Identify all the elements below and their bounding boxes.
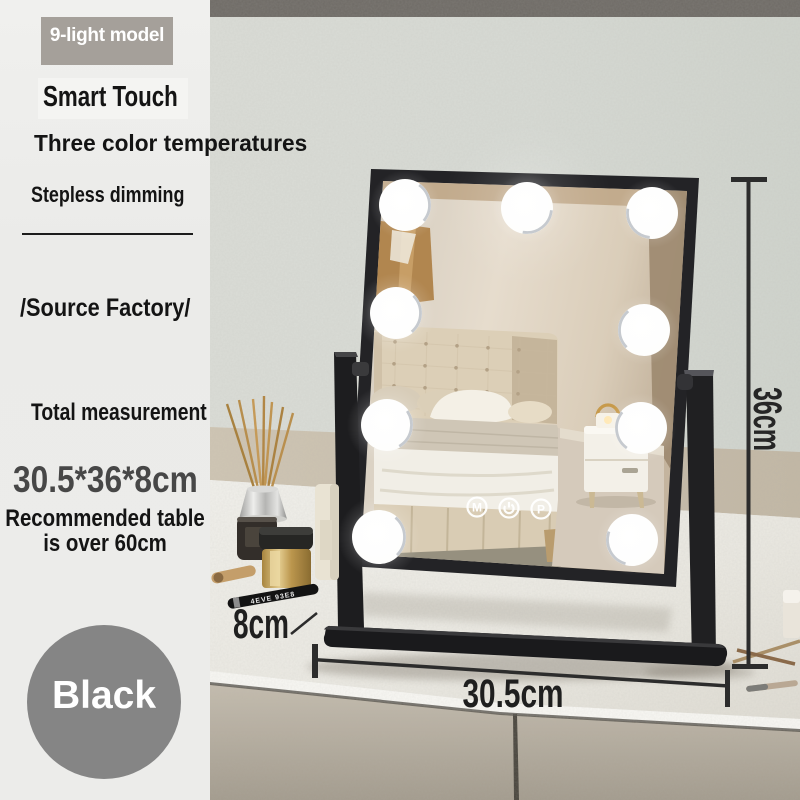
svg-text:M: M bbox=[472, 501, 482, 515]
svg-text:P: P bbox=[537, 503, 545, 517]
svg-text:30.5cm: 30.5cm bbox=[463, 672, 564, 716]
svg-text:8cm: 8cm bbox=[233, 600, 289, 647]
svg-text:36cm: 36cm bbox=[745, 387, 789, 451]
